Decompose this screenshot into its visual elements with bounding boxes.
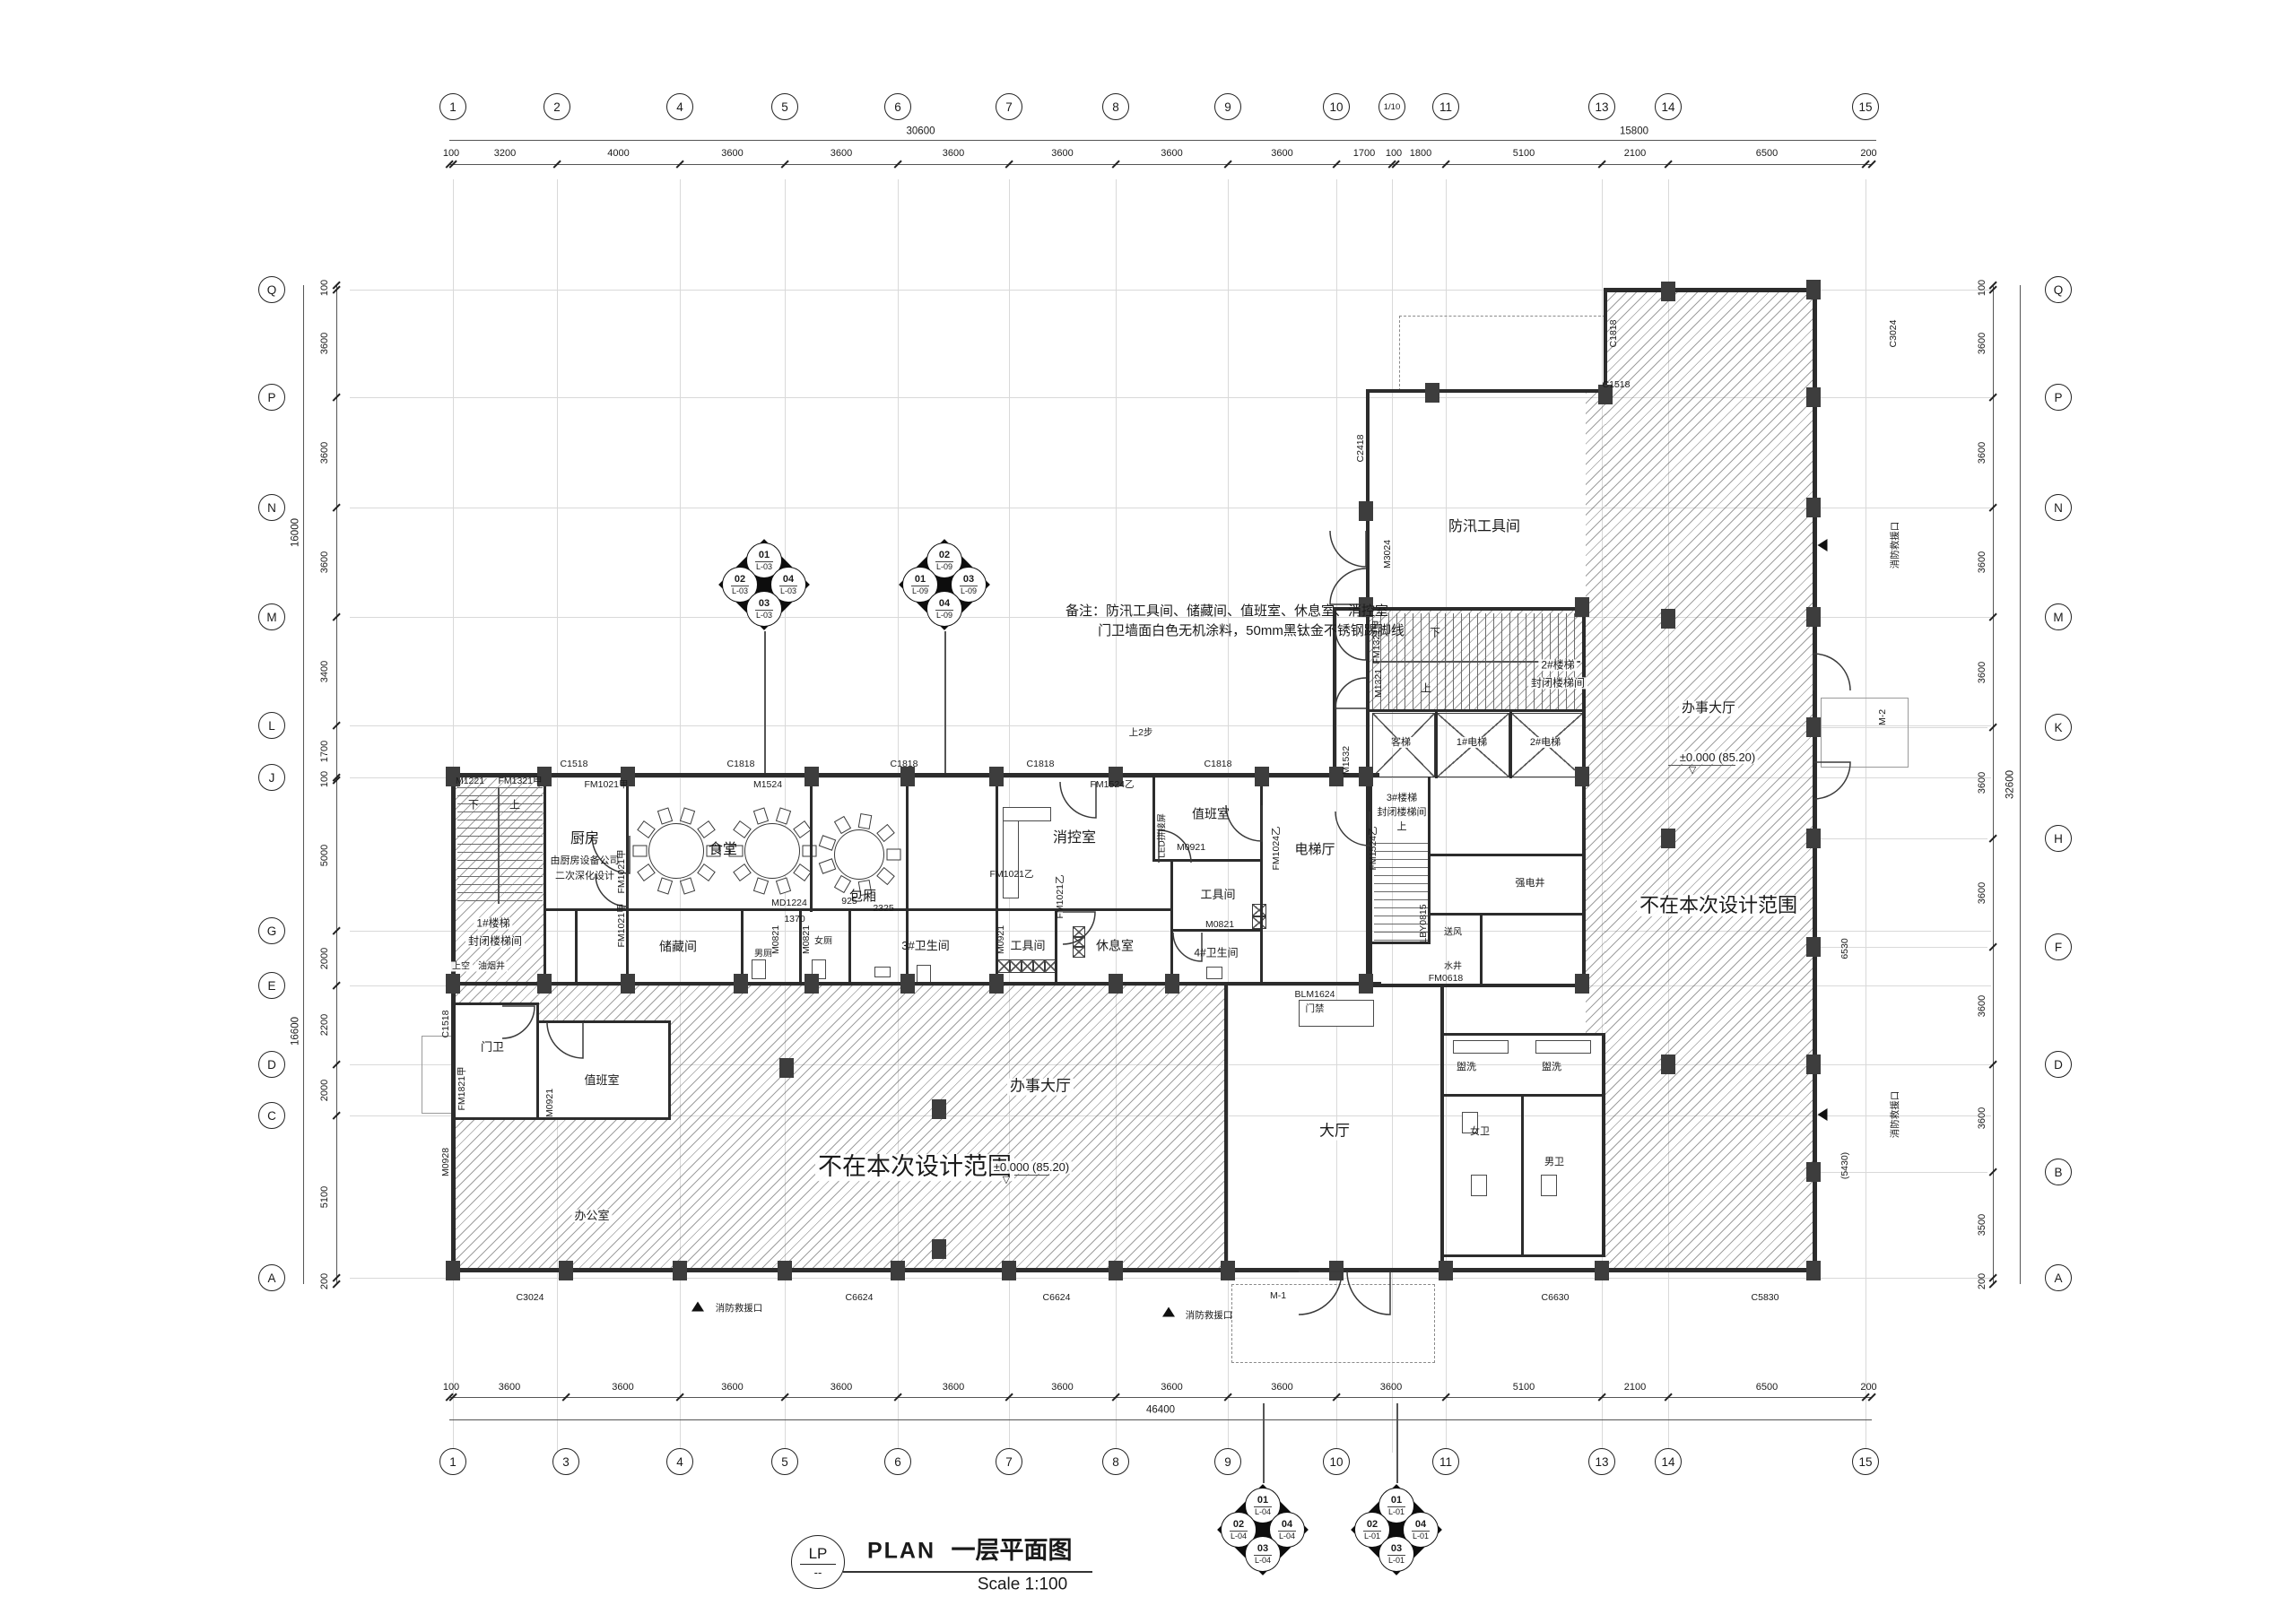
dims-top-dim: 1700 <box>1353 148 1375 159</box>
dims-bottom-dim: 3600 <box>499 1382 520 1393</box>
dims-left-overall-line <box>303 285 304 780</box>
grid-bubble-Q: Q <box>258 276 285 303</box>
dims-right-dim: 100 <box>1977 279 1987 295</box>
level-triangle-icon: ▽ <box>1003 1175 1010 1185</box>
room-label: 食堂 <box>709 842 737 858</box>
code-label: FM1321甲 <box>1372 620 1383 664</box>
dims-right-dim: 3600 <box>1977 994 1987 1016</box>
grid-bubble-A: A <box>258 1264 285 1291</box>
finish-tag-number: 04 <box>1412 1520 1430 1532</box>
grid-bubble-D: D <box>2045 1051 2072 1078</box>
dims-top-chain-line <box>449 164 1872 165</box>
code-label: 消防救援口 <box>1186 1311 1233 1322</box>
room-label: 男卫 <box>1544 1157 1564 1167</box>
titleblock-tag: LP -- <box>791 1535 845 1589</box>
notes-line-2: 门卫墙面白色无机涂料，50mm黑钛金不锈钢踢脚线 <box>1098 624 1405 639</box>
room-label: 工具间 <box>1200 889 1235 901</box>
code-label: LBY0815 <box>1419 904 1430 942</box>
grid-bubble-7: 7 <box>996 1448 1022 1475</box>
code-label: FM1021乙 <box>989 870 1033 881</box>
code-label: M0921 <box>545 1089 556 1117</box>
room-label: 1#电梯 <box>1454 737 1490 748</box>
dims-top-dim: 4000 <box>607 148 629 159</box>
finish-tag-number: 01 <box>755 551 773 562</box>
dims-top-dim: 200 <box>1860 148 1876 159</box>
finish-tag-number: 03 <box>960 575 978 586</box>
room-label: 消控室 <box>1053 830 1096 846</box>
titleblock-plan-cn: 一层平面图 <box>952 1538 1073 1565</box>
dims-top-dim: 3600 <box>831 148 852 159</box>
tag-leader-line <box>764 631 766 773</box>
finish-tag-number: 03 <box>755 599 773 611</box>
code-label: M0921 <box>996 925 1007 954</box>
grid-bubble-M: M <box>2045 603 2072 630</box>
room-label: 送风 <box>1444 928 1462 938</box>
grid-bubble-E: E <box>258 972 285 999</box>
code-label: M1524 <box>753 780 782 791</box>
dims-top-overall-line <box>1392 140 1876 141</box>
dims-right-dim: 3600 <box>1977 441 1987 463</box>
dims-bottom-dim: 2100 <box>1624 1382 1646 1393</box>
titleblock-scale: Scale 1:100 <box>978 1576 1067 1595</box>
code-label: C2418 <box>1356 435 1367 463</box>
dims-top-dim: 3600 <box>1161 148 1182 159</box>
code-label: BLM1624 <box>1295 990 1335 1001</box>
room-label: 男厕 <box>754 950 772 959</box>
door-swing <box>1299 1271 1342 1315</box>
dims-top-overall: 30600 <box>907 126 935 138</box>
dims-left-overall: 16600 <box>291 1017 302 1046</box>
code-label: FM1821甲 <box>457 1066 468 1110</box>
dims-left-dim: 3400 <box>319 660 330 681</box>
dims-left-dim: 3600 <box>319 333 330 354</box>
code-label: C6624 <box>846 1293 874 1304</box>
grid-bubble-9: 9 <box>1214 93 1241 120</box>
grid-bubble-5: 5 <box>771 93 798 120</box>
grid-bubble-Q: Q <box>2045 276 2072 303</box>
dims-left-overall: 16000 <box>291 518 302 547</box>
dims-right-dim: 3600 <box>1977 1107 1987 1129</box>
dims-left-dim: 1700 <box>319 741 330 762</box>
room-label: 值班室 <box>1192 807 1230 820</box>
grid-bubble-M: M <box>258 603 285 630</box>
finish-tag-code: L-04 <box>1255 1557 1271 1565</box>
code-label: FM1021甲 <box>617 849 628 893</box>
code-label: C3024 <box>517 1293 544 1304</box>
room-label: 强电井 <box>1516 878 1545 889</box>
door-swing <box>1330 531 1366 567</box>
scope-label: 办事大厅 <box>1679 701 1738 716</box>
code-label: 消防救援口 <box>716 1304 763 1315</box>
dims-bottom-dim: 5100 <box>1513 1382 1535 1393</box>
code-label: MD1224 <box>771 898 807 909</box>
dims-right-dim: 3500 <box>1977 1214 1987 1236</box>
dims-right-dim: 3600 <box>1977 881 1987 903</box>
code-label: M0821 <box>771 925 782 954</box>
room-label: 油烟井 <box>475 962 508 972</box>
grid-bubble-8: 8 <box>1102 1448 1129 1475</box>
code-label: FM1321甲 <box>498 777 542 787</box>
door-swing <box>1063 912 1095 944</box>
code-label: 门禁 <box>1306 1004 1325 1015</box>
code-label: 消防救援口 <box>1891 522 1901 569</box>
dims-left-dim: 100 <box>319 279 330 295</box>
code-label: 上2步 <box>1129 728 1153 739</box>
dims-top-dim: 3200 <box>494 148 516 159</box>
door-swing <box>1226 805 1262 841</box>
fire-rescue-triangle <box>1818 1108 1828 1121</box>
dims-left-dim: 100 <box>319 770 330 786</box>
code-label: M-1 <box>1270 1291 1286 1302</box>
scope-label: 不在本次设计范围 <box>1637 895 1800 916</box>
dims-left-dim: 5100 <box>319 1185 330 1207</box>
finish-tag-number: 02 <box>1230 1520 1248 1532</box>
finish-tag-circle-bottom: 03L-03 <box>746 591 782 627</box>
grid-bubble-D: D <box>258 1051 285 1078</box>
grid-bubble-4: 4 <box>666 93 693 120</box>
code-label: 925 <box>841 897 857 907</box>
room-label: 电梯厅 <box>1294 843 1335 858</box>
code-label: 6530 <box>1840 938 1851 959</box>
scope-label: 不在本次设计范围 <box>815 1154 1014 1181</box>
dims-left-dim: 3600 <box>319 441 330 463</box>
dims-bottom-overall-line <box>449 1419 1872 1420</box>
dims-bottom-overall: 46400 <box>1146 1405 1175 1417</box>
room-label: 3#卫生间 <box>901 940 949 952</box>
code-label: M1321 <box>1374 669 1385 698</box>
room-label: LED拼接屏 <box>1158 813 1168 857</box>
room-label: 门卫 <box>481 1041 504 1054</box>
grid-bubble-N: N <box>258 494 285 521</box>
dims-top-dim: 3600 <box>943 148 964 159</box>
code-label: (5430) <box>1840 1152 1851 1179</box>
grid-bubble-N: N <box>2045 494 2072 521</box>
dims-bottom-dim: 3600 <box>612 1382 633 1393</box>
code-label: C6624 <box>1043 1293 1071 1304</box>
code-label: M0928 <box>441 1148 452 1176</box>
dims-top-dim: 100 <box>443 148 459 159</box>
dims-right-dim: 3600 <box>1977 551 1987 573</box>
code-label: C1518 <box>1603 380 1631 391</box>
floor-plan-canvas: LP -- PLAN 一层平面图 Scale 1:100 备注：防汛工具间、储藏… <box>0 0 2296 1623</box>
finish-tag-code: L-09 <box>961 587 977 595</box>
finish-tag-number: 04 <box>935 599 953 611</box>
code-label: FM1021甲 <box>617 903 628 947</box>
finish-tag-number: 03 <box>1254 1544 1272 1556</box>
grid-bubble-13: 13 <box>1588 1448 1615 1475</box>
code-label: FM1021乙 <box>1056 874 1066 918</box>
finish-tag-code: L-04 <box>1255 1508 1271 1516</box>
titleblock-underline <box>843 1571 1092 1573</box>
fire-rescue-triangle <box>1818 539 1828 551</box>
code-label: FM1024乙 <box>1272 826 1283 870</box>
door-swing <box>1347 1271 1390 1315</box>
door-swing <box>1813 654 1850 690</box>
finish-tag-code: L-09 <box>936 612 952 620</box>
finish-tag-code: L-03 <box>780 587 796 595</box>
code-label: M3024 <box>1383 540 1394 568</box>
grid-bubble-C: C <box>258 1102 285 1129</box>
dims-top-dim: 3600 <box>1271 148 1292 159</box>
room-label: 女卫 <box>1470 1126 1490 1137</box>
fire-rescue-triangle <box>691 1302 704 1312</box>
finish-tag-number: 02 <box>731 575 749 586</box>
code-label: C3024 <box>1889 320 1900 348</box>
grid-bubble-10: 10 <box>1323 93 1350 120</box>
dims-bottom-dim: 3600 <box>1051 1382 1073 1393</box>
grid-bubble-13: 13 <box>1588 93 1615 120</box>
dims-left-dim: 3600 <box>319 551 330 573</box>
finish-tag-number: 02 <box>1363 1520 1381 1532</box>
finish-tag-number: 03 <box>1387 1544 1405 1556</box>
code-label: C1518 <box>441 1011 452 1038</box>
grid-bubble-A: A <box>2045 1264 2072 1291</box>
room-label: 防汛工具间 <box>1448 519 1520 535</box>
room-label: 盥洗 <box>1542 1062 1561 1072</box>
room-label: 上 <box>1397 821 1407 832</box>
grid-bubble-6: 6 <box>884 93 911 120</box>
door-swing <box>1335 678 1366 708</box>
room-label: 厨房 <box>570 831 599 847</box>
grid-bubble-H: H <box>2045 825 2072 852</box>
grid-bubble-11: 11 <box>1432 1448 1459 1475</box>
code-label: C1818 <box>1027 759 1055 770</box>
door-swing <box>1330 568 1366 604</box>
dims-top-dim: 3600 <box>1051 148 1073 159</box>
room-label: 4#卫生间 <box>1194 947 1238 959</box>
titleblock-tag-divider <box>800 1564 836 1565</box>
grid-bubble-G: G <box>258 917 285 944</box>
dims-top-dim: 1800 <box>1410 148 1431 159</box>
room-label: 下 <box>1430 627 1440 638</box>
tag-leader-line <box>1396 1403 1398 1483</box>
dims-top-dim: 100 <box>1386 148 1402 159</box>
room-label: 封闭楼梯间 <box>1378 807 1427 818</box>
room-label: 休息室 <box>1096 939 1134 952</box>
code-label: M1532 <box>1342 746 1352 775</box>
finish-tag-circle-bottom: 04L-09 <box>926 591 962 627</box>
finish-tag-code: L-09 <box>936 563 952 571</box>
room-label: 由厨房设备公司 <box>551 855 620 866</box>
code-label: C6630 <box>1542 1293 1570 1304</box>
fire-rescue-triangle <box>1162 1307 1175 1317</box>
stair-1-rail <box>498 787 500 904</box>
room-label: 工具间 <box>1010 940 1045 952</box>
scope-label: 办事大厅 <box>1007 1079 1074 1096</box>
dims-top-overall: 15800 <box>1620 126 1648 138</box>
room-label: 上 <box>1421 682 1431 694</box>
code-label: C1818 <box>891 759 918 770</box>
room-label: 盥洗 <box>1457 1062 1476 1072</box>
grid-bubble-4: 4 <box>666 1448 693 1475</box>
code-label: M1221 <box>456 777 484 787</box>
titleblock-plan-en: PLAN <box>867 1539 935 1564</box>
code-label: M0921 <box>1177 843 1205 854</box>
door-swing <box>1335 811 1370 846</box>
room-label: 封闭楼梯间 <box>1528 677 1587 689</box>
dims-right-overall-line <box>2020 285 2021 1284</box>
level-marker: ±0.000 (85.20) <box>991 1161 1072 1174</box>
finish-tag-number: 01 <box>911 575 929 586</box>
level-marker: ±0.000 (85.20) <box>1677 751 1758 764</box>
dims-bottom-dim: 3600 <box>1271 1382 1292 1393</box>
room-label: 值班室 <box>584 1074 619 1087</box>
finish-tag-code: L-04 <box>1279 1532 1295 1541</box>
code-label: 1370 <box>784 915 804 925</box>
code-label: M-2 <box>1878 709 1889 725</box>
grid-bubble-3: 3 <box>552 1448 579 1475</box>
level-underline <box>1668 765 1735 766</box>
grid-bubble-10: 10 <box>1323 1448 1350 1475</box>
grid-bubble-B: B <box>2045 1159 2072 1185</box>
grid-bubble-L: L <box>258 712 285 739</box>
dims-left-dim: 200 <box>319 1272 330 1289</box>
room-label: 客梯 <box>1388 737 1413 748</box>
dims-bottom-dim: 3600 <box>1161 1382 1182 1393</box>
door-swing-layer <box>0 0 2296 1623</box>
room-label: 1#楼梯 <box>474 917 512 929</box>
room-label: 2#电梯 <box>1527 737 1563 748</box>
grid-bubble-14: 14 <box>1655 1448 1682 1475</box>
tag-leader-line <box>944 631 946 773</box>
dims-top-dim: 2100 <box>1624 148 1646 159</box>
grid-bubble-K: K <box>2045 714 2072 741</box>
room-label: 水井 <box>1444 962 1462 972</box>
door-swing <box>547 1022 583 1058</box>
scope-label: 大厅 <box>1317 1124 1352 1141</box>
dims-left-overall-line <box>303 777 304 1284</box>
dims-bottom-dim: 3600 <box>721 1382 743 1393</box>
code-label: C1818 <box>727 759 755 770</box>
dims-bottom-dim: 3600 <box>1380 1382 1402 1393</box>
grid-bubble-8: 8 <box>1102 93 1129 120</box>
room-label: 封闭楼梯间 <box>465 935 525 947</box>
dims-top-dim: 6500 <box>1756 148 1778 159</box>
dims-top-dim: 5100 <box>1513 148 1535 159</box>
grid-bubble-6: 6 <box>884 1448 911 1475</box>
dims-bottom-dim: 3600 <box>943 1382 964 1393</box>
dims-left-chain-line <box>336 285 337 1284</box>
titleblock-tag-sub: -- <box>814 1567 822 1579</box>
finish-tag-circle-bottom: 03L-01 <box>1378 1536 1414 1572</box>
grid-bubble-1/10: 1/10 <box>1378 93 1405 120</box>
finish-tag-number: 04 <box>1278 1520 1296 1532</box>
finish-tag-circle-bottom: 03L-04 <box>1245 1536 1281 1572</box>
door-swing <box>1813 762 1850 799</box>
room-label: 3#楼梯 <box>1387 793 1417 803</box>
dims-left-dim: 2200 <box>319 1014 330 1036</box>
room-label: 储藏间 <box>659 940 697 953</box>
code-label: 2325 <box>873 904 893 915</box>
titleblock-tag-text: LP <box>809 1546 828 1562</box>
finish-tag-code: L-03 <box>756 612 772 620</box>
code-label: C1518 <box>561 759 588 770</box>
grid-bubble-11: 11 <box>1432 93 1459 120</box>
dims-right-overall: 32600 <box>2005 770 2017 799</box>
grid-bubble-2: 2 <box>544 93 570 120</box>
code-label: C1818 <box>1205 759 1232 770</box>
dims-bottom-chain-line <box>449 1397 1872 1398</box>
grid-bubble-5: 5 <box>771 1448 798 1475</box>
room-label: 上空 <box>449 962 473 972</box>
tag-leader-line <box>1263 1403 1265 1483</box>
code-label: 消防救援口 <box>1891 1091 1901 1139</box>
finish-tag-code: L-01 <box>1388 1508 1405 1516</box>
finish-tag-code: L-01 <box>1388 1557 1405 1565</box>
code-label: FM0618 <box>1429 974 1464 985</box>
finish-tag-code: L-09 <box>912 587 928 595</box>
finish-tag-number: 02 <box>935 551 953 562</box>
dims-top-dim: 3600 <box>721 148 743 159</box>
room-label: 女厕 <box>814 937 832 947</box>
door-swing <box>502 1006 535 1038</box>
notes-line-1: 备注：防汛工具间、储藏间、值班室、休息室、消控室 <box>1065 604 1388 620</box>
dims-right-dim: 3600 <box>1977 333 1987 354</box>
grid-bubble-P: P <box>258 384 285 411</box>
dims-right-dim: 3600 <box>1977 661 1987 682</box>
grid-bubble-15: 15 <box>1852 93 1879 120</box>
room-label: 办公室 <box>571 1210 612 1222</box>
finish-tag-code: L-04 <box>1231 1532 1247 1541</box>
dims-left-dim: 5000 <box>319 845 330 866</box>
code-label: FM1021甲 <box>584 780 628 791</box>
code-label: M0821 <box>802 925 813 954</box>
code-label: FM1524乙 <box>1090 780 1134 791</box>
dims-bottom-dim: 200 <box>1860 1382 1876 1393</box>
room-label: 二次深化设计 <box>555 871 614 881</box>
grid-bubble-7: 7 <box>996 93 1022 120</box>
level-triangle-icon: ▽ <box>1689 765 1696 776</box>
grid-bubble-J: J <box>258 764 285 791</box>
finish-tag-code: L-03 <box>756 563 772 571</box>
grid-bubble-F: F <box>2045 933 2072 960</box>
code-label: M0821 <box>1205 920 1234 931</box>
code-label: C1818 <box>1609 320 1620 348</box>
dims-right-chain-line <box>1993 285 1994 1284</box>
dims-top-overall-line <box>449 140 1392 141</box>
finish-tag-number: 01 <box>1387 1496 1405 1507</box>
grid-bubble-14: 14 <box>1655 93 1682 120</box>
dims-right-dim: 200 <box>1977 1272 1987 1289</box>
dims-left-dim: 2000 <box>319 947 330 968</box>
finish-tag-code: L-03 <box>732 587 748 595</box>
room-label: 下 <box>468 799 479 811</box>
finish-tag-number: 04 <box>779 575 797 586</box>
room-label: 上 <box>509 799 520 811</box>
finish-tag-code: L-01 <box>1364 1532 1380 1541</box>
code-label: C5830 <box>1752 1293 1779 1304</box>
dims-bottom-dim: 100 <box>443 1382 459 1393</box>
dims-bottom-dim: 6500 <box>1756 1382 1778 1393</box>
grid-bubble-9: 9 <box>1214 1448 1241 1475</box>
finish-tag-code: L-01 <box>1413 1532 1429 1541</box>
grid-bubble-1: 1 <box>439 93 466 120</box>
dims-left-dim: 2000 <box>319 1079 330 1100</box>
code-label: FM1524乙 <box>1369 826 1379 870</box>
dims-bottom-dim: 3600 <box>831 1382 852 1393</box>
finish-tag-number: 01 <box>1254 1496 1272 1507</box>
grid-bubble-15: 15 <box>1852 1448 1879 1475</box>
grid-bubble-1: 1 <box>439 1448 466 1475</box>
grid-bubble-P: P <box>2045 384 2072 411</box>
dims-right-dim: 3600 <box>1977 772 1987 794</box>
room-label: 2#楼梯 <box>1538 659 1577 671</box>
